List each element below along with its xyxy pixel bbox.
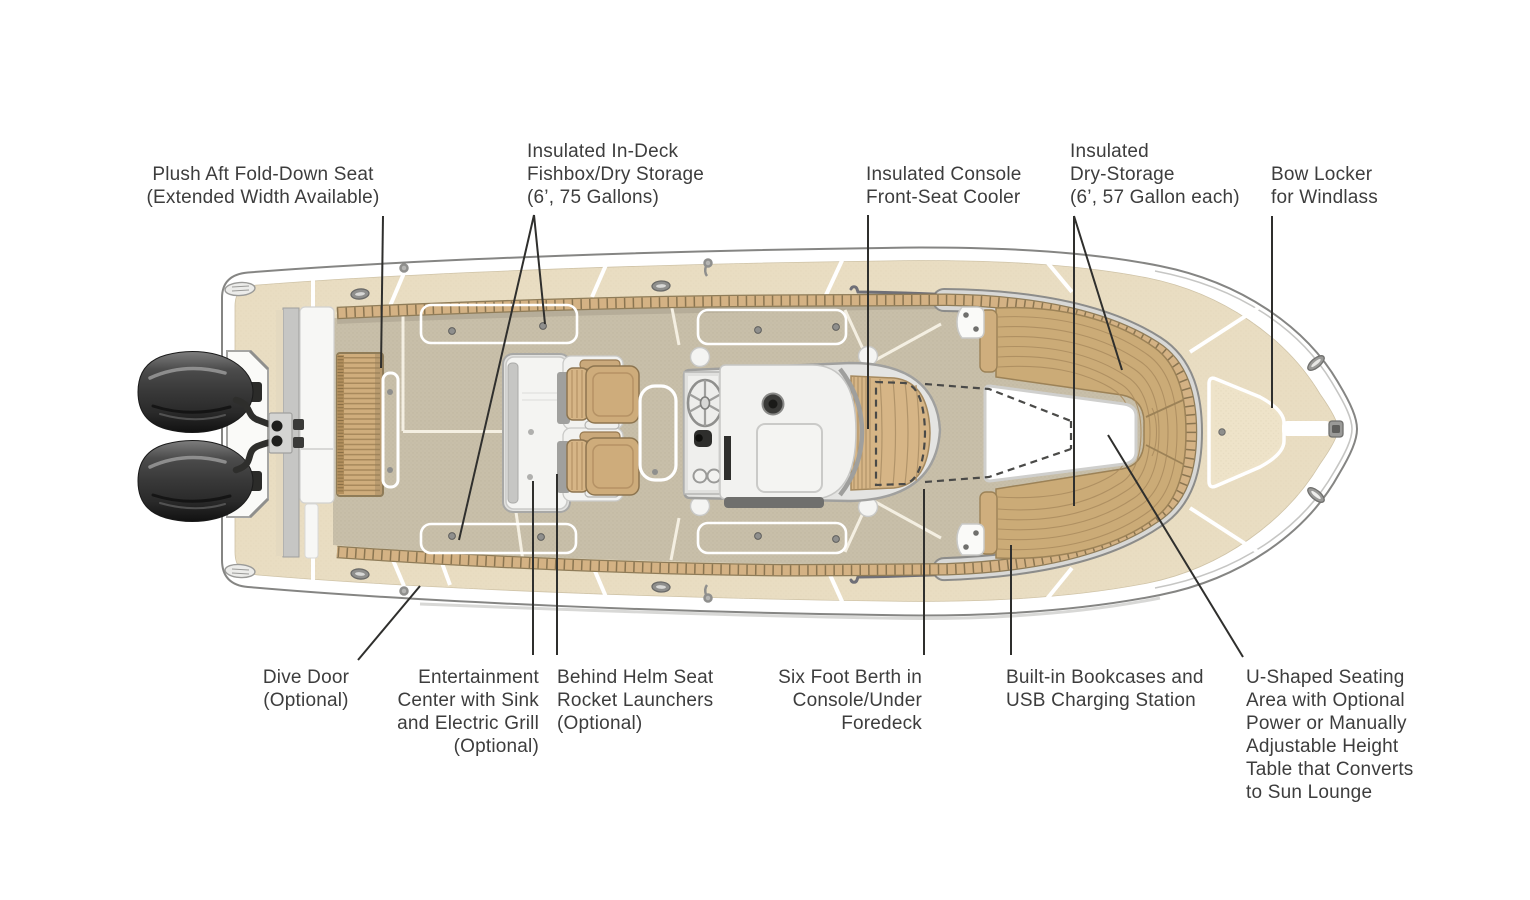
- svg-text:(Optional): (Optional): [263, 690, 348, 711]
- svg-text:Plush Aft Fold-Down Seat: Plush Aft Fold-Down Seat: [152, 164, 374, 185]
- svg-text:for Windlass: for Windlass: [1271, 187, 1378, 208]
- svg-text:Insulated Console: Insulated Console: [866, 164, 1022, 185]
- svg-text:Area with Optional: Area with Optional: [1246, 690, 1405, 711]
- svg-text:Bow Locker: Bow Locker: [1271, 164, 1373, 185]
- svg-text:Insulated In-Deck: Insulated In-Deck: [527, 141, 679, 162]
- svg-text:USB Charging Station: USB Charging Station: [1006, 690, 1196, 711]
- svg-text:Table that Converts: Table that Converts: [1246, 759, 1414, 780]
- svg-text:(Optional): (Optional): [454, 736, 539, 757]
- svg-text:Foredeck: Foredeck: [841, 713, 922, 734]
- svg-text:Console/Under: Console/Under: [793, 690, 923, 711]
- svg-text:Behind Helm Seat: Behind Helm Seat: [557, 667, 714, 688]
- svg-text:Entertainment: Entertainment: [418, 667, 539, 688]
- svg-text:Front-Seat Cooler: Front-Seat Cooler: [866, 187, 1021, 208]
- svg-text:Built-in Bookcases and: Built-in Bookcases and: [1006, 667, 1204, 688]
- svg-text:to Sun Lounge: to Sun Lounge: [1246, 782, 1372, 803]
- svg-text:and Electric Grill: and Electric Grill: [397, 713, 539, 734]
- svg-text:Insulated: Insulated: [1070, 141, 1149, 162]
- svg-text:Dry-Storage: Dry-Storage: [1070, 164, 1175, 185]
- svg-text:U-Shaped Seating: U-Shaped Seating: [1246, 667, 1404, 688]
- svg-text:Dive Door: Dive Door: [263, 667, 350, 688]
- svg-text:Center with Sink: Center with Sink: [397, 690, 539, 711]
- svg-text:Power or Manually: Power or Manually: [1246, 713, 1407, 734]
- svg-text:Rocket Launchers: Rocket Launchers: [557, 690, 713, 711]
- svg-text:(Optional): (Optional): [557, 713, 642, 734]
- svg-text:Six Foot Berth in: Six Foot Berth in: [778, 667, 922, 688]
- svg-text:(Extended Width Available): (Extended Width Available): [147, 187, 380, 208]
- svg-text:Fishbox/Dry Storage: Fishbox/Dry Storage: [527, 164, 704, 185]
- svg-text:(6’, 57 Gallon each): (6’, 57 Gallon each): [1070, 187, 1240, 208]
- svg-text:Adjustable Height: Adjustable Height: [1246, 736, 1399, 757]
- svg-text:(6’, 75 Gallons): (6’, 75 Gallons): [527, 187, 659, 208]
